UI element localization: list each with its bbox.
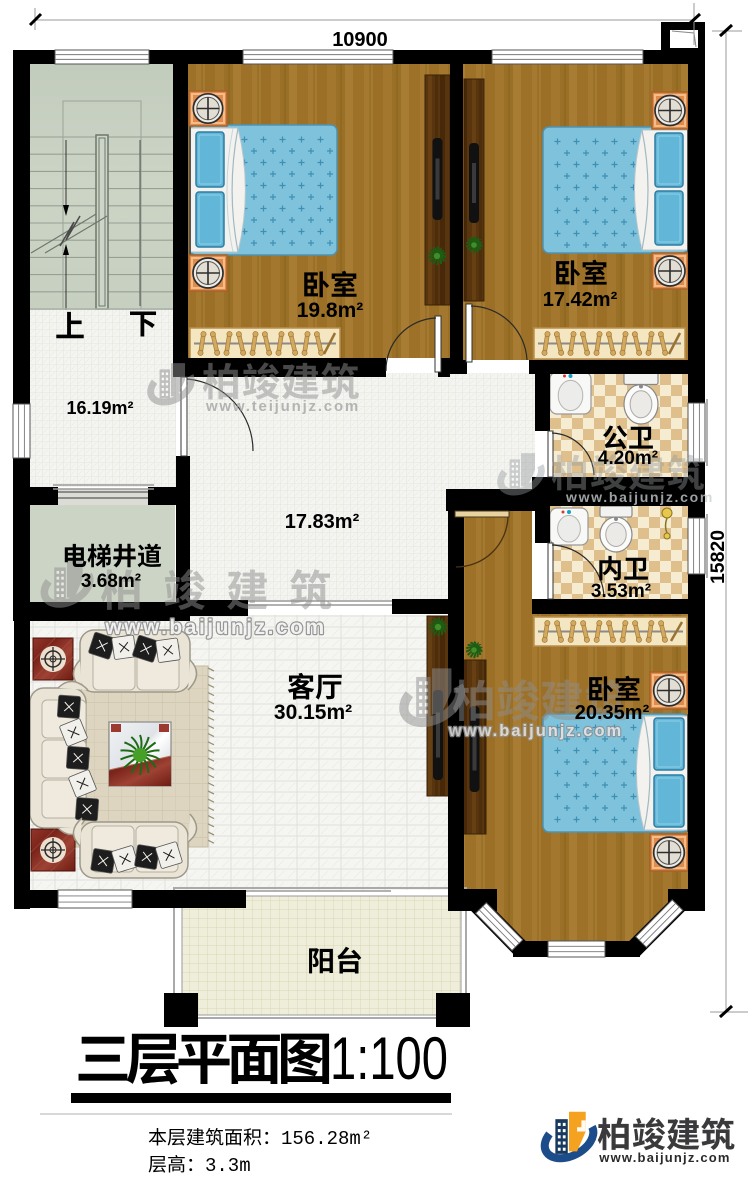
svg-text:156.28m²: 156.28m²: [281, 1128, 372, 1150]
svg-text:3.53m²: 3.53m²: [591, 581, 651, 602]
svg-text:3.68m²: 3.68m²: [81, 571, 141, 592]
svg-text:4.20m²: 4.20m²: [598, 448, 658, 469]
svg-text:20.35m²: 20.35m²: [575, 702, 650, 724]
svg-text:16.19m²: 16.19m²: [66, 398, 133, 418]
svg-text:17.83m²: 17.83m²: [285, 511, 360, 533]
svg-text:19.8m²: 19.8m²: [297, 299, 364, 322]
svg-text:10900: 10900: [332, 29, 388, 51]
svg-text:17.42m²: 17.42m²: [543, 289, 618, 311]
svg-text:30.15m²: 30.15m²: [274, 701, 352, 724]
svg-text:www.baijunjz.com: www.baijunjz.com: [104, 616, 326, 639]
svg-text:www.baijunjz.com: www.baijunjz.com: [448, 722, 623, 740]
svg-text:15820: 15820: [708, 530, 729, 584]
svg-text:3.3m: 3.3m: [205, 1155, 251, 1177]
svg-text:www.teijunjz.com: www.teijunjz.com: [205, 398, 360, 415]
svg-text:www.baijunjz.com: www.baijunjz.com: [565, 489, 714, 505]
svg-text:www.baijunjz.com: www.baijunjz.com: [598, 1150, 730, 1165]
svg-text:1:100: 1:100: [330, 1025, 448, 1092]
